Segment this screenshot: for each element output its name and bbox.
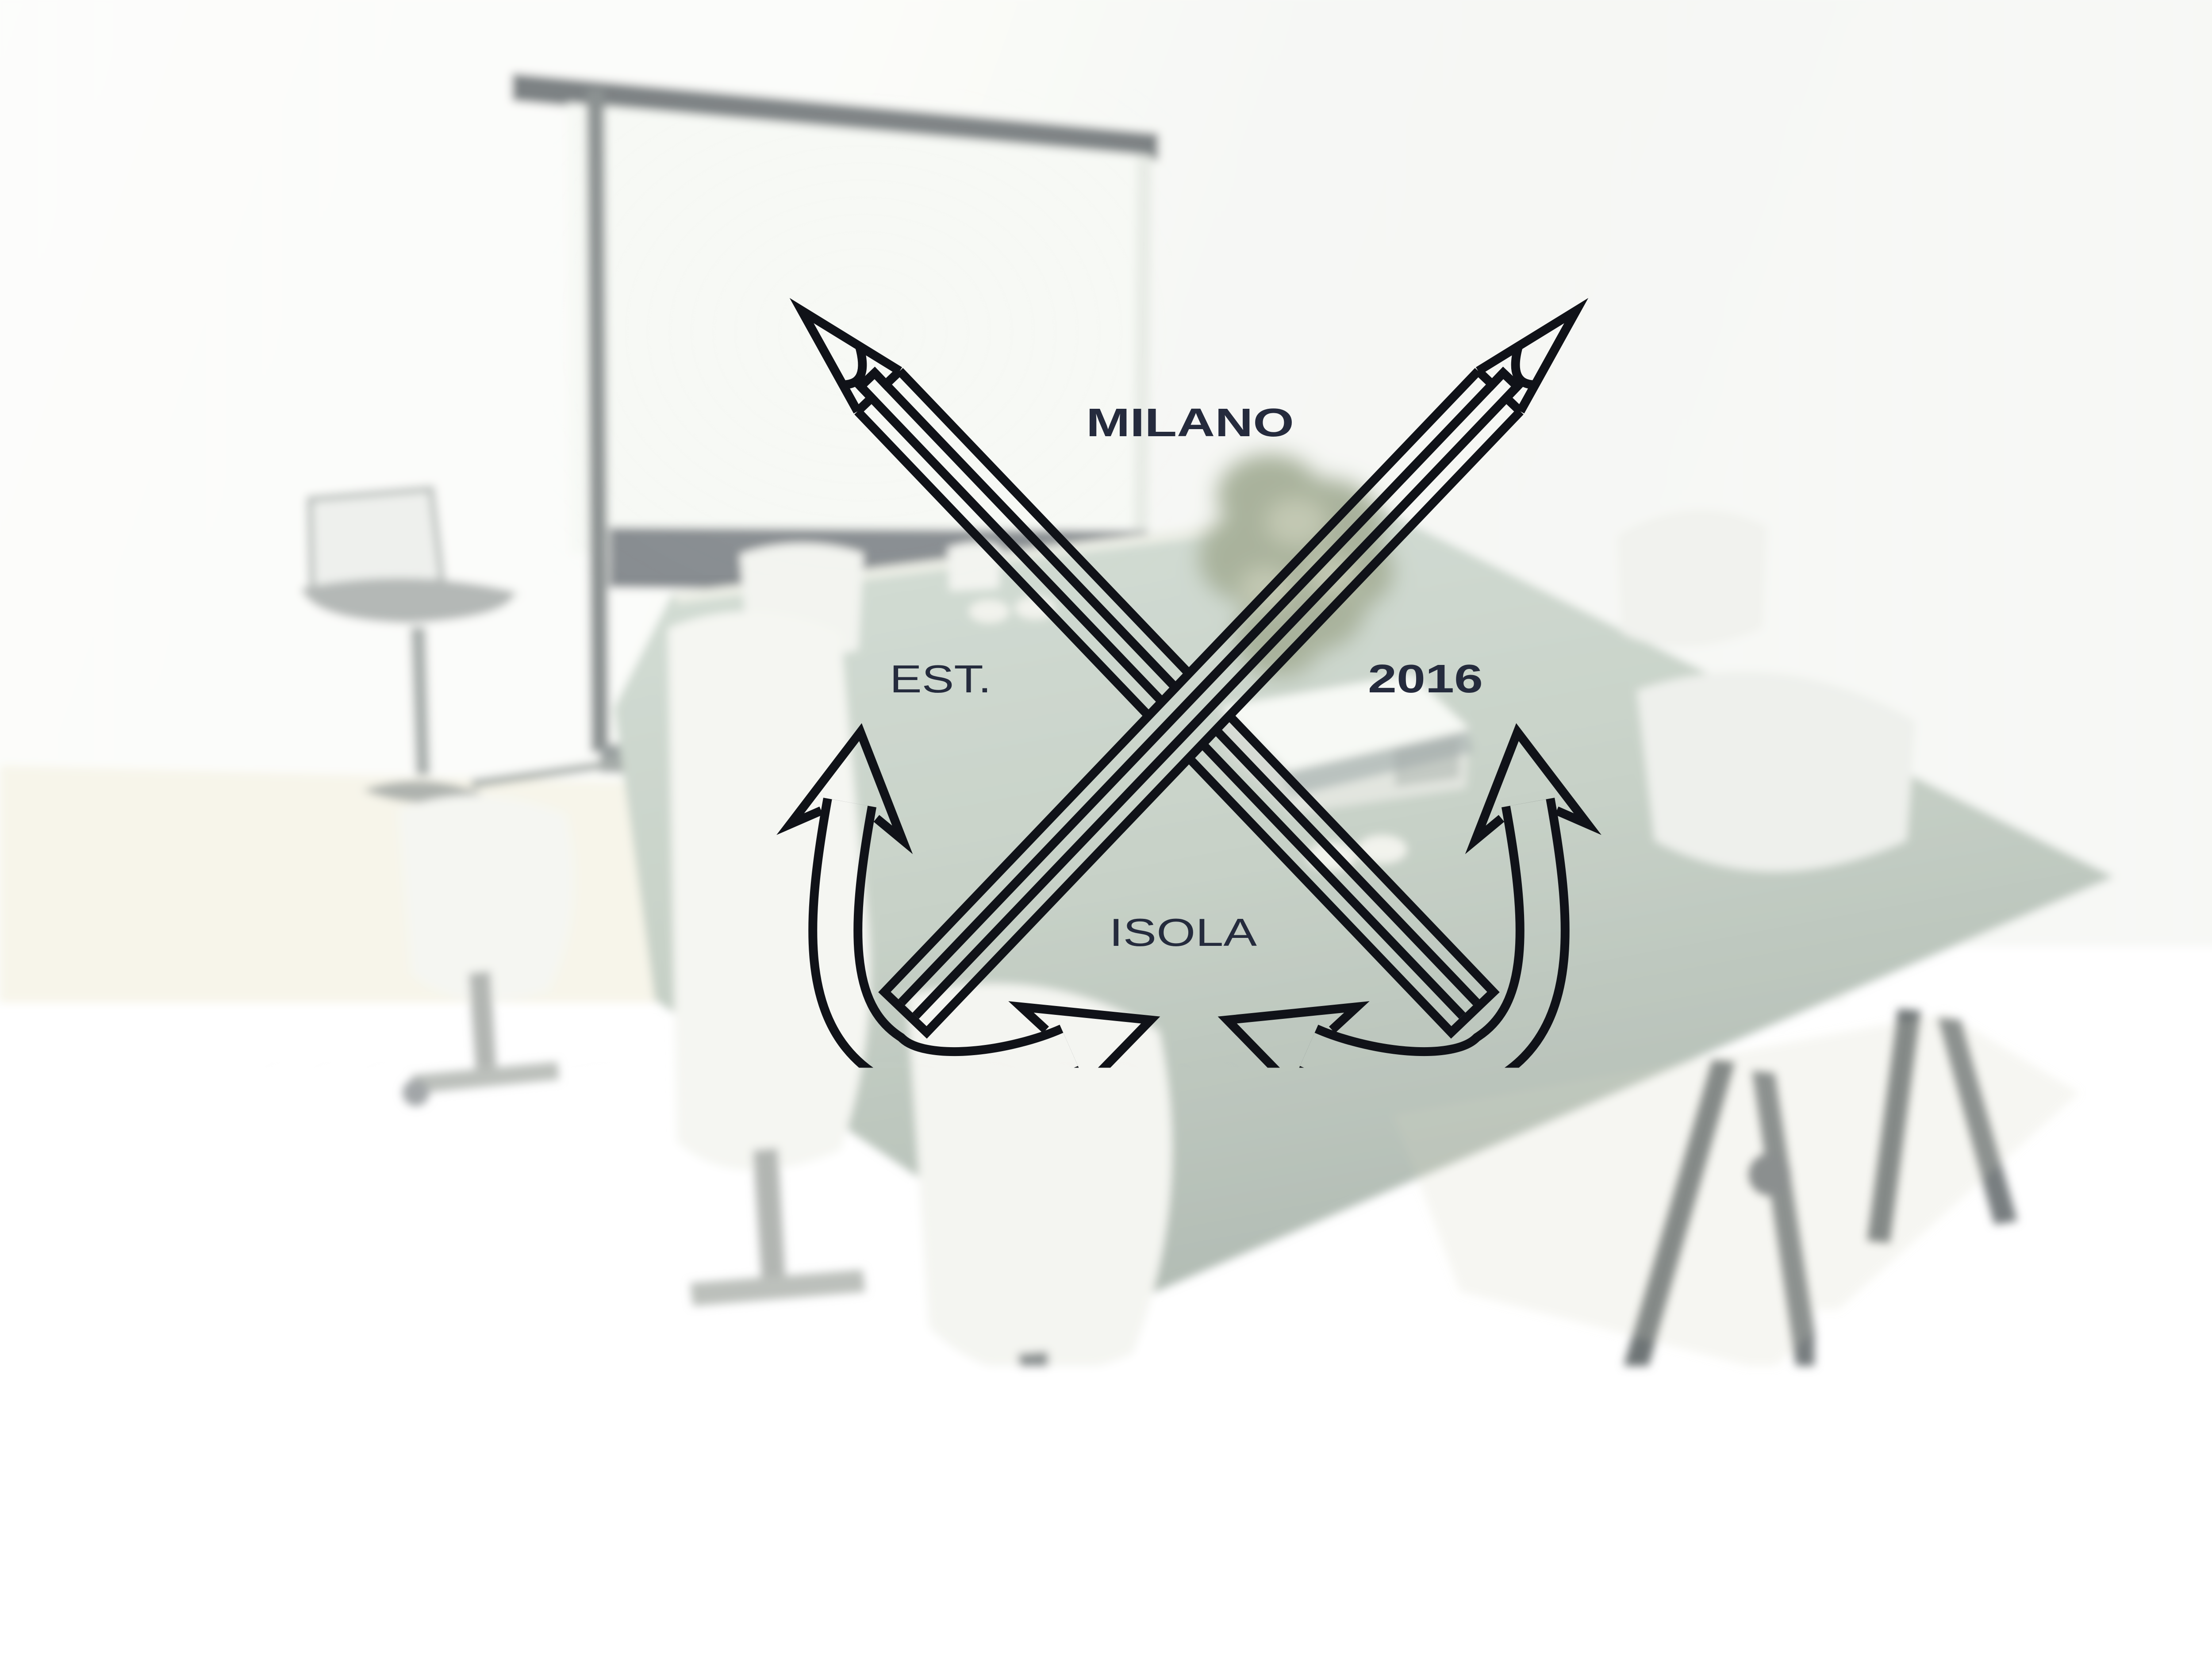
svg-text:2016: 2016	[1368, 657, 1483, 701]
svg-text:EST.: EST.	[890, 657, 991, 701]
svg-text:MEETING / WORKSHOP: MEETING / WORKSHOP	[519, 1206, 1871, 1363]
svg-text:ISOLA: ISOLA	[1109, 910, 1257, 954]
svg-text:MILANO: MILANO	[1086, 401, 1294, 445]
svg-text:ROOM: ROOM	[996, 1355, 1381, 1512]
